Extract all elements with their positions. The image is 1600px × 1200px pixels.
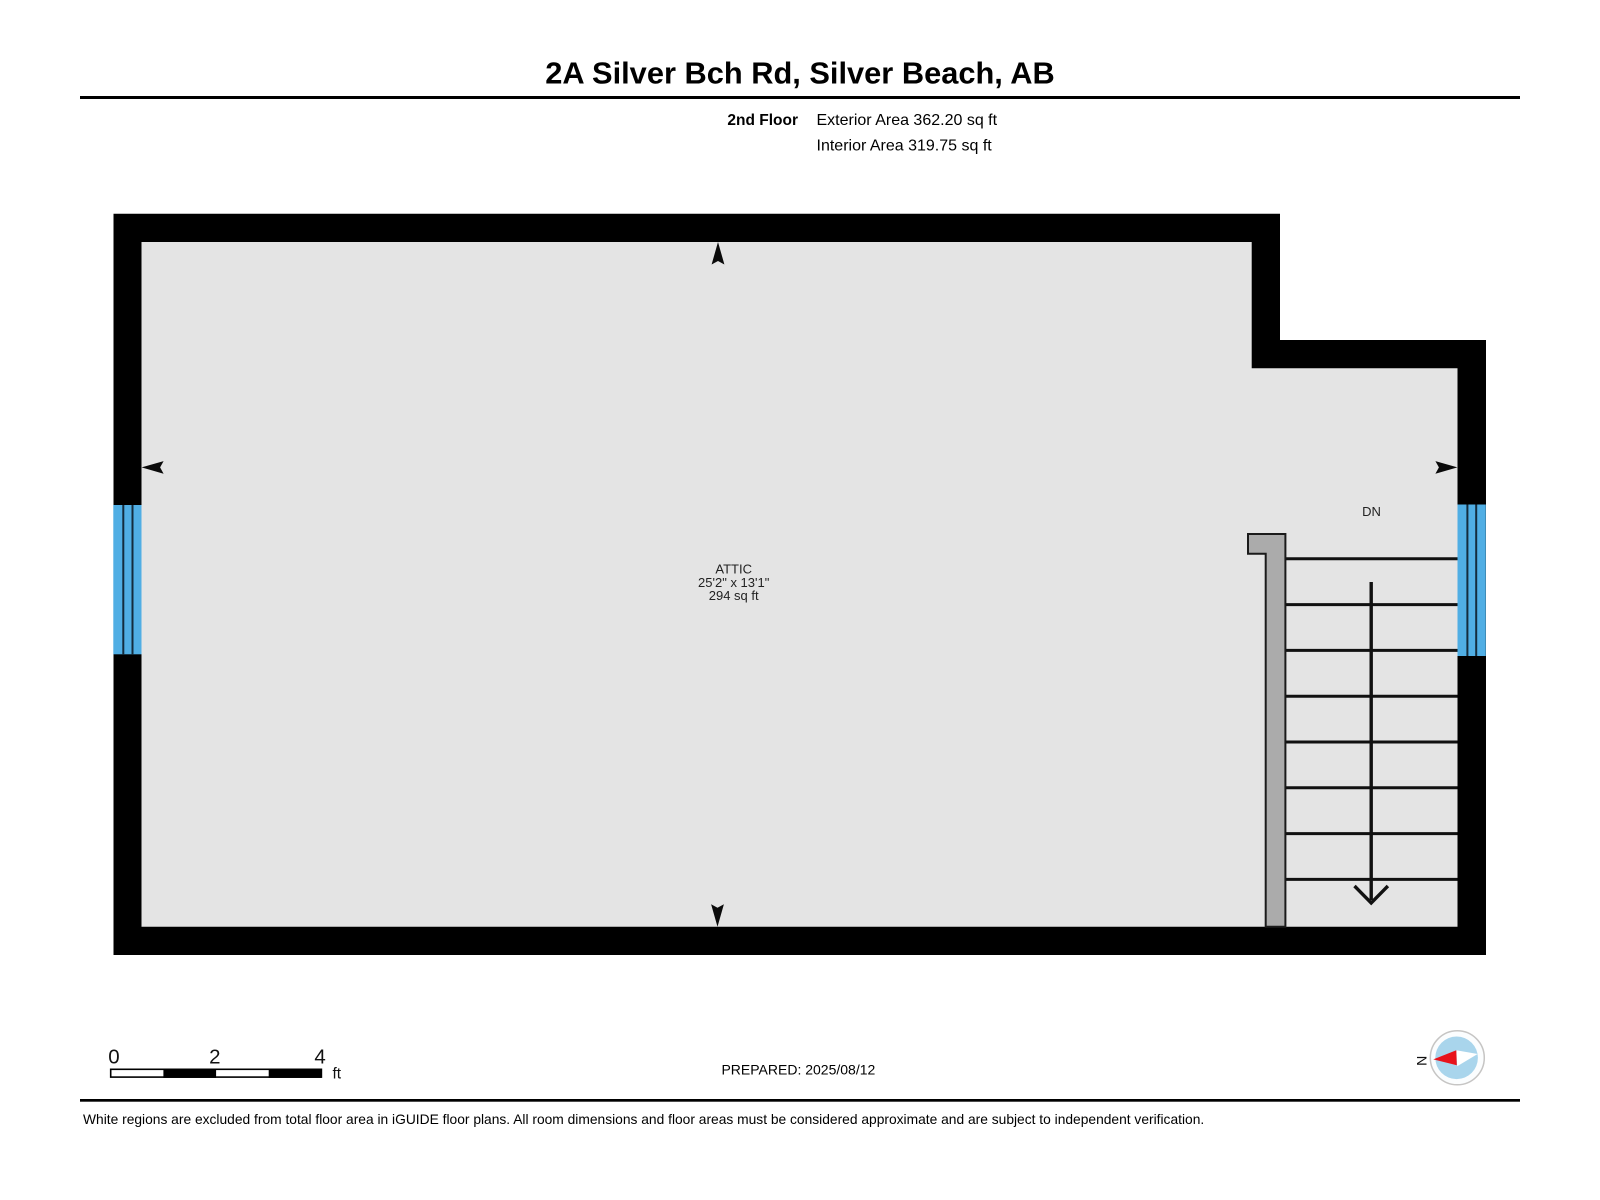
svg-text:2: 2 — [209, 1046, 220, 1069]
svg-text:294 sq ft: 294 sq ft — [709, 588, 759, 603]
svg-text:Interior Area 319.75 sq ft: Interior Area 319.75 sq ft — [817, 138, 993, 155]
svg-text:2nd Floor: 2nd Floor — [727, 112, 798, 129]
svg-text:PREPARED: 2025/08/12: PREPARED: 2025/08/12 — [721, 1062, 875, 1078]
svg-text:DN: DN — [1362, 504, 1381, 519]
svg-text:ft: ft — [333, 1066, 342, 1083]
svg-text:0: 0 — [108, 1046, 119, 1069]
svg-text:White regions are excluded fro: White regions are excluded from total fl… — [83, 1112, 1204, 1127]
svg-text:2A Silver Bch Rd, Silver Beach: 2A Silver Bch Rd, Silver Beach, AB — [545, 55, 1054, 90]
svg-text:4: 4 — [314, 1046, 325, 1069]
svg-text:N: N — [1414, 1056, 1430, 1066]
svg-text:Exterior Area 362.20 sq ft: Exterior Area 362.20 sq ft — [817, 112, 998, 129]
